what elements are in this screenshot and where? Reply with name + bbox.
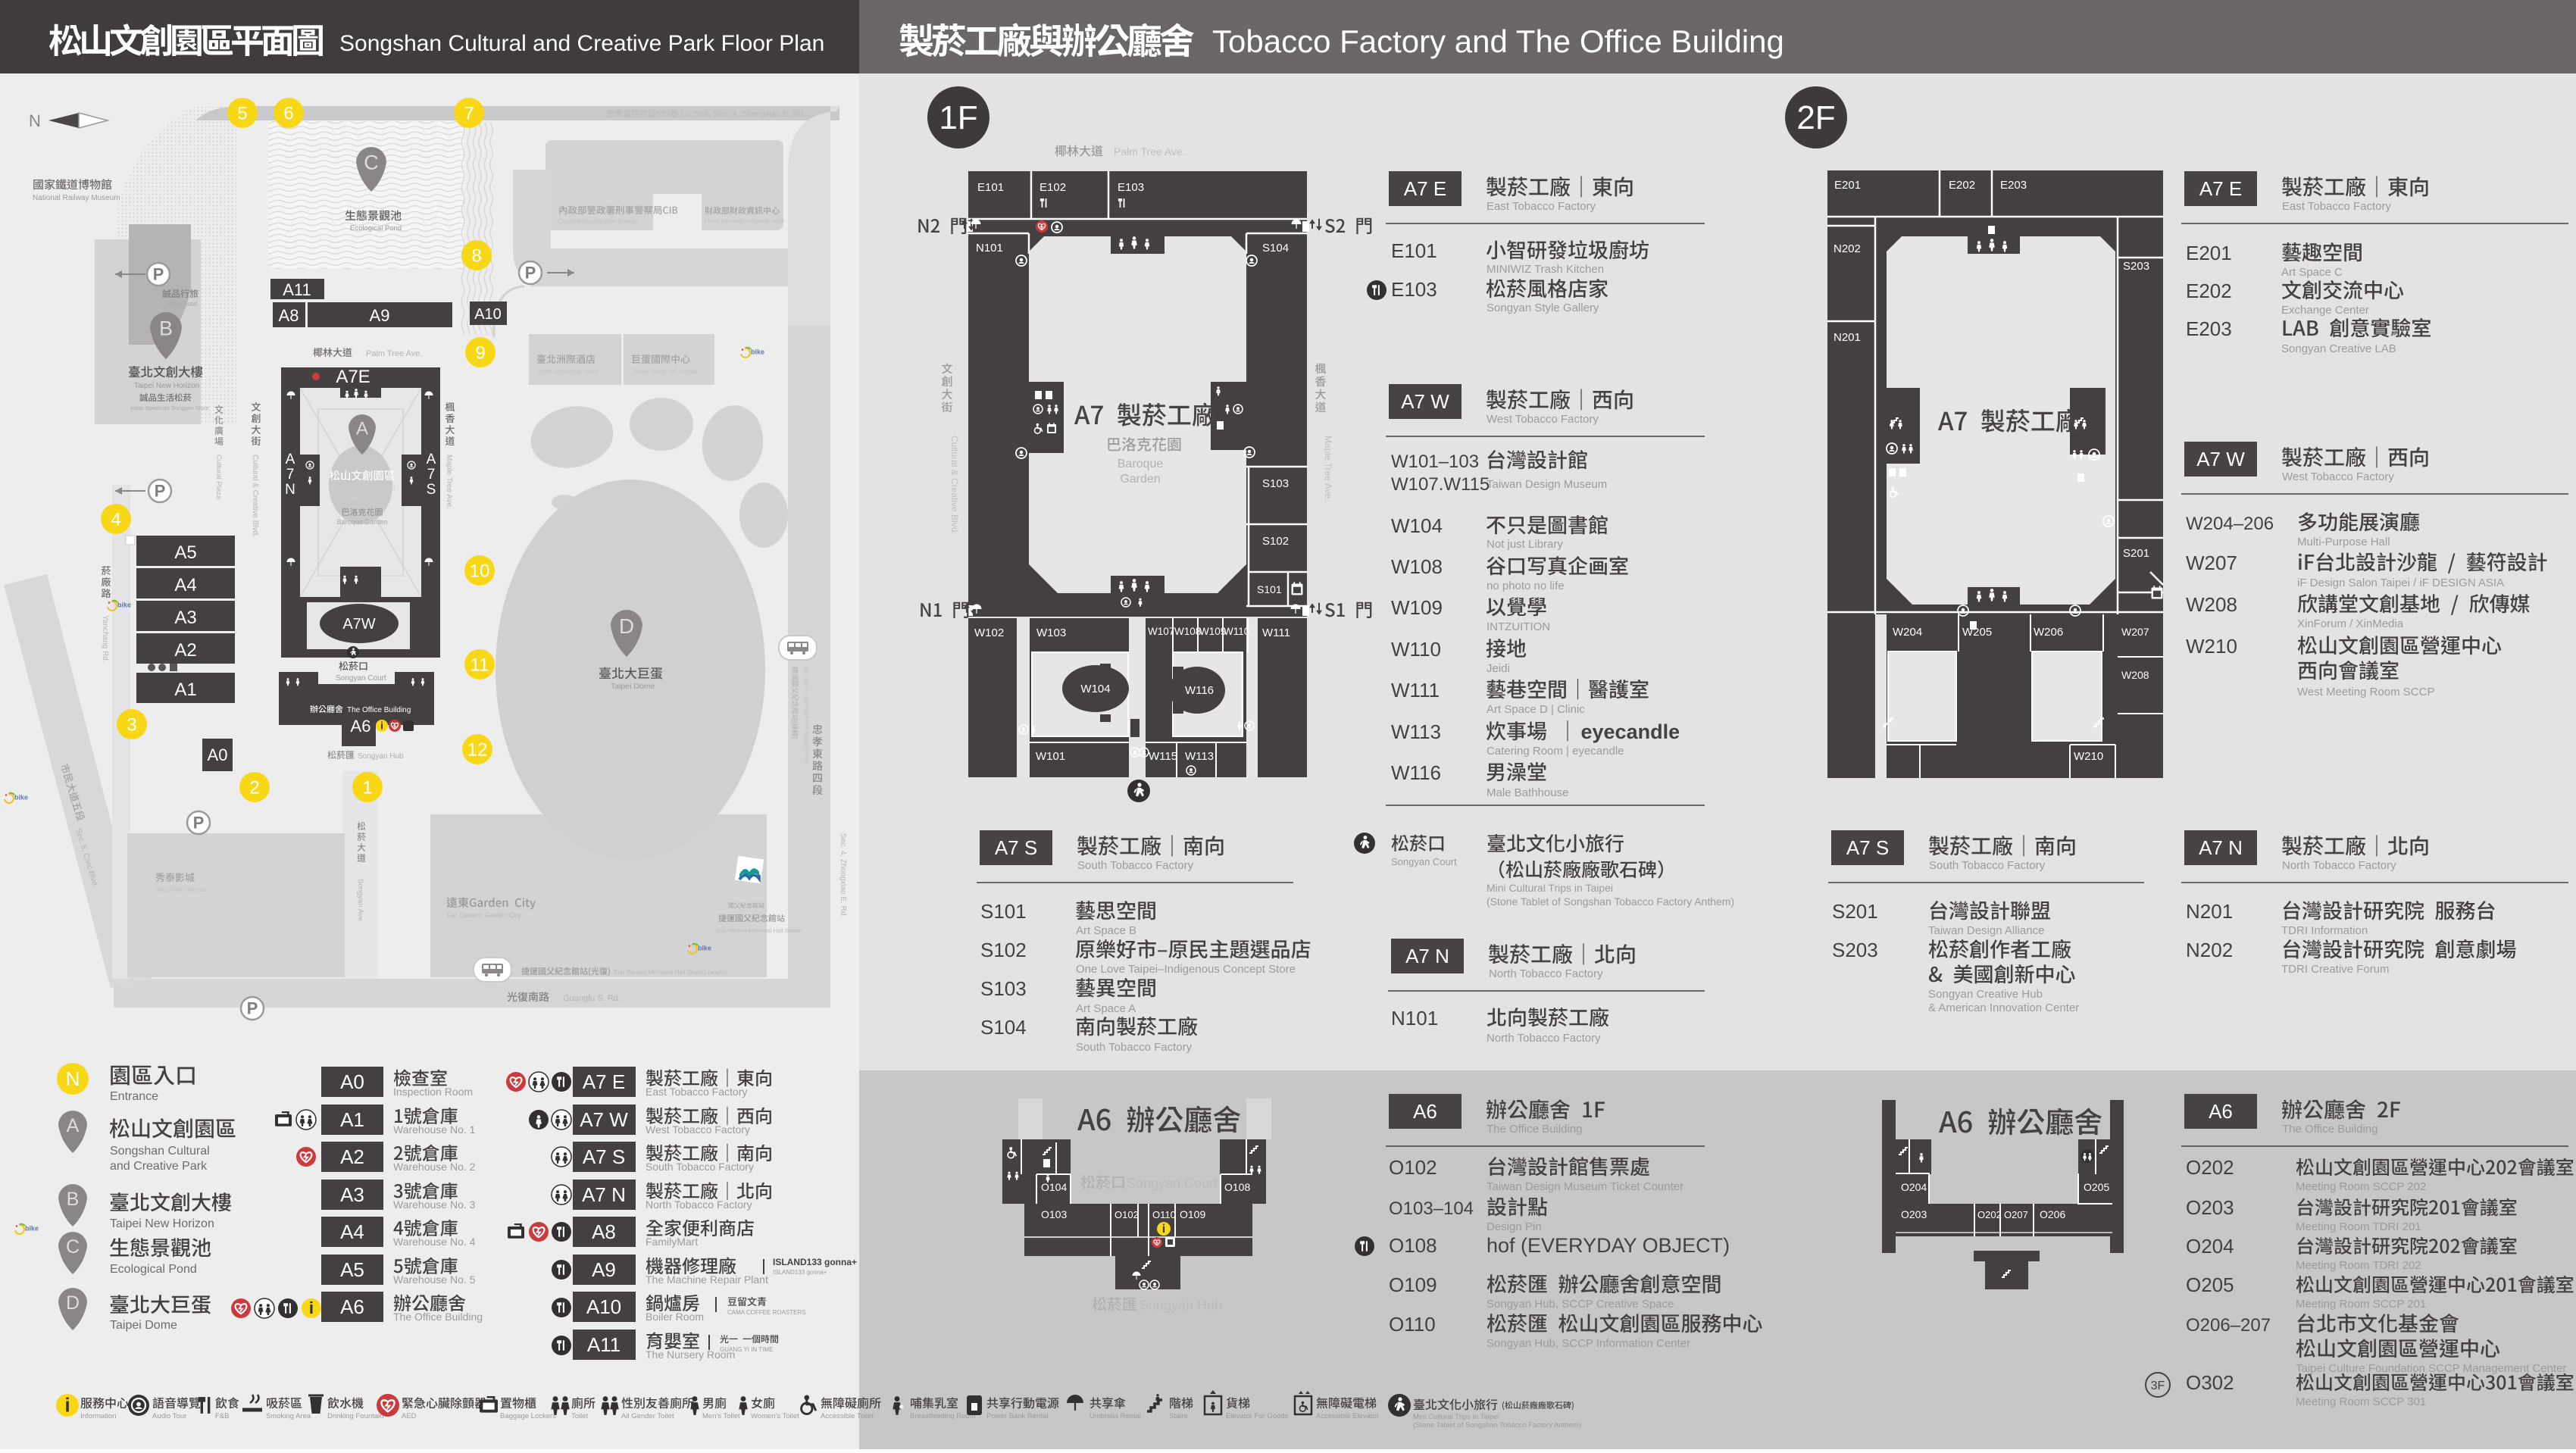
svg-text:W207: W207 — [2186, 552, 2237, 574]
svg-text:Taipei Culture Foundation SCCP: Taipei Culture Foundation SCCP Managemen… — [2296, 1362, 2566, 1375]
svg-text:Toilet: Toilet — [571, 1412, 589, 1420]
svg-text:XinForum / XinMedia: XinForum / XinMedia — [2297, 617, 2404, 630]
svg-text:North Tobacco Factory: North Tobacco Factory — [646, 1198, 752, 1211]
svg-text:W101–103: W101–103 — [1391, 452, 1479, 472]
svg-text:2: 2 — [249, 777, 259, 798]
svg-text:East Tobacco Factory: East Tobacco Factory — [2282, 200, 2391, 213]
svg-text:Breastfeeding Room: Breastfeeding Room — [910, 1412, 976, 1420]
svg-text:Entrance: Entrance — [110, 1090, 158, 1103]
svg-text:Art Space C: Art Space C — [2281, 266, 2343, 279]
svg-text:S104: S104 — [980, 1016, 1027, 1039]
svg-text:A5: A5 — [340, 1258, 364, 1281]
svg-text:Taiwan Design Museum Ticket Co: Taiwan Design Museum Ticket Counter — [1487, 1180, 1683, 1193]
svg-text:InterContinental Taipei: InterContinental Taipei — [538, 368, 599, 375]
svg-text:Exchange Center: Exchange Center — [2281, 304, 2369, 317]
svg-text:W103: W103 — [1036, 627, 1066, 639]
svg-text:O202: O202 — [1977, 1209, 2002, 1220]
svg-text:A6: A6 — [1413, 1100, 1437, 1123]
svg-text:Mini Cultural Trips in Taipei: Mini Cultural Trips in Taipei — [1487, 882, 1613, 894]
svg-text:Catering Room | eyecandle: Catering Room | eyecandle — [1487, 745, 1624, 758]
svg-text:A0: A0 — [208, 745, 228, 764]
svg-text:Sun Yat-sen Memorial Hall Stat: Sun Yat-sen Memorial Hall Station[Green] — [803, 667, 808, 765]
svg-text:A3: A3 — [340, 1183, 364, 1206]
svg-text:Yanchang Rd.: Yanchang Rd. — [101, 615, 109, 663]
svg-text:Baroque Garden: Baroque Garden — [337, 518, 388, 526]
svg-text:W204: W204 — [1893, 626, 1922, 639]
svg-text:O103: O103 — [1041, 1208, 1067, 1220]
svg-text:10: 10 — [470, 561, 490, 581]
svg-text:Accessible Toilet: Accessible Toilet — [821, 1412, 874, 1420]
svg-text:i: i — [64, 1395, 70, 1416]
svg-text:C: C — [364, 152, 379, 174]
svg-text:W204–206: W204–206 — [2186, 514, 2274, 534]
svg-text:AED: AED — [402, 1412, 417, 1420]
svg-text:W115: W115 — [1149, 750, 1177, 763]
svg-text:Art Space B: Art Space B — [1076, 924, 1136, 937]
svg-text:A10: A10 — [474, 306, 502, 323]
svg-text:O108: O108 — [1389, 1234, 1437, 1257]
svg-text:S101: S101 — [980, 900, 1027, 923]
svg-text:A7 W: A7 W — [2196, 448, 2245, 470]
svg-text:A6: A6 — [351, 717, 371, 736]
svg-text:O206–207: O206–207 — [2186, 1315, 2271, 1336]
svg-text:South Tobacco Factory: South Tobacco Factory — [1077, 859, 1194, 872]
svg-text:Baroque: Baroque — [1118, 458, 1164, 470]
svg-text:Songshan Cultural and Creative: Songshan Cultural and Creative Park Floo… — [339, 31, 824, 56]
svg-text:no photo no life: no photo no life — [1487, 580, 1565, 592]
svg-text:Songyan Court: Songyan Court — [336, 674, 386, 683]
svg-text:N202: N202 — [2186, 939, 2233, 961]
svg-text:ISLAND133 gonna+: ISLAND133 gonna+ — [773, 1269, 827, 1276]
svg-text:Songyan Hub, SCCP Information: Songyan Hub, SCCP Information Center — [1487, 1337, 1690, 1350]
svg-text:A11: A11 — [587, 1333, 621, 1356]
svg-text:Cultural & Creative Blvd.: Cultural & Creative Blvd. — [251, 455, 259, 537]
svg-text:North Tobacco Factory: North Tobacco Factory — [2282, 859, 2396, 872]
svg-text:A9: A9 — [370, 306, 390, 325]
svg-text:Stairs: Stairs — [1169, 1412, 1188, 1420]
svg-text:A7W: A7W — [342, 616, 375, 633]
svg-text:忠孝東路四段553巷 Ln. 553, Sec. 4, Zh: 忠孝東路四段553巷 Ln. 553, Sec. 4, Zhongxiao E.… — [606, 108, 806, 119]
svg-text:Art Space A: Art Space A — [1076, 1002, 1136, 1015]
svg-text:Taipei Dome: Taipei Dome — [110, 1319, 177, 1332]
svg-text:O108: O108 — [1224, 1181, 1250, 1193]
svg-text:W109: W109 — [1391, 596, 1443, 619]
svg-text:Songyan Style Gallery: Songyan Style Gallery — [1487, 302, 1599, 314]
svg-text:O206: O206 — [2040, 1208, 2065, 1220]
svg-text:D: D — [66, 1292, 80, 1314]
svg-text:One Love Taipei–Indigenous Con: One Love Taipei–Indigenous Concept Store — [1076, 963, 1296, 976]
svg-text:Songyan Hub: Songyan Hub — [358, 752, 404, 761]
svg-text:O207: O207 — [2004, 1209, 2028, 1220]
svg-text:Warehouse No. 4: Warehouse No. 4 — [393, 1236, 476, 1248]
svg-text:O110: O110 — [1389, 1313, 1436, 1336]
svg-text:Meeting Room TDRI 202: Meeting Room TDRI 202 — [2296, 1259, 2421, 1272]
svg-text:O109: O109 — [1180, 1208, 1205, 1220]
svg-text:(Stone Tablet of Songshan Toba: (Stone Tablet of Songshan Tobacco Factor… — [1413, 1421, 1581, 1430]
svg-text:A: A — [67, 1115, 80, 1136]
svg-text:S203: S203 — [2123, 260, 2149, 273]
svg-text:eslite hotel: eslite hotel — [168, 301, 197, 308]
svg-text:B: B — [159, 317, 173, 340]
svg-text:8: 8 — [471, 245, 481, 266]
svg-text:W116: W116 — [1185, 684, 1214, 697]
svg-text:A11: A11 — [283, 280, 311, 299]
svg-text:11: 11 — [470, 655, 489, 675]
svg-text:Songshan Cultural: Songshan Cultural — [110, 1145, 210, 1158]
svg-text:GUANG YI IN TIME: GUANG YI IN TIME — [720, 1346, 773, 1353]
svg-text:Fiscal Information Agency, MOF: Fiscal Information Agency, MOF — [705, 217, 786, 224]
svg-text:S103: S103 — [1262, 477, 1289, 490]
svg-text:S: S — [427, 482, 436, 498]
svg-text:S102: S102 — [980, 939, 1027, 961]
svg-text:Garden: Garden — [1120, 473, 1160, 486]
svg-text:B: B — [67, 1189, 80, 1210]
svg-text:3F: 3F — [2151, 1380, 2165, 1392]
svg-text:1: 1 — [362, 777, 372, 798]
svg-text:Baggage Lockers: Baggage Lockers — [500, 1412, 556, 1420]
svg-text:Meeting Room TDRI 201: Meeting Room TDRI 201 — [2296, 1220, 2421, 1233]
svg-text:A8: A8 — [279, 306, 299, 325]
svg-text:Maple Tree Ave.: Maple Tree Ave. — [1323, 436, 1333, 502]
svg-text:F&B: F&B — [215, 1412, 229, 1420]
svg-text:Ecological Pond: Ecological Pond — [350, 224, 402, 233]
svg-text:C: C — [66, 1236, 80, 1258]
svg-text:Meeting Room SCCP 301: Meeting Room SCCP 301 — [2296, 1395, 2426, 1408]
svg-text:O102: O102 — [1114, 1209, 1139, 1220]
svg-text:ISLAND133 gonna+: ISLAND133 gonna+ — [773, 1257, 857, 1267]
svg-text:West Tobacco Factory: West Tobacco Factory — [646, 1123, 750, 1136]
svg-text:eslite Spectrum Songyan Store: eslite Spectrum Songyan Store — [130, 405, 208, 411]
svg-text:S104: S104 — [1262, 242, 1289, 255]
svg-text:bike: bike — [698, 945, 711, 952]
svg-text:7: 7 — [427, 467, 436, 483]
svg-text:P: P — [155, 482, 166, 501]
svg-text:iF Design Salon Taipei / iF DE: iF Design Salon Taipei / iF DESIGN ASIA — [2297, 577, 2504, 589]
svg-text:Art Space D | Clinic: Art Space D | Clinic — [1487, 703, 1585, 716]
svg-text:A7 N: A7 N — [582, 1183, 626, 1206]
svg-text:Smoking Area: Smoking Area — [266, 1412, 311, 1420]
svg-text:Audio Tour: Audio Tour — [152, 1412, 186, 1420]
svg-text:National Railway Museum: National Railway Museum — [33, 194, 120, 202]
svg-text:A2: A2 — [340, 1145, 364, 1168]
svg-text:Songyan Court: Songyan Court — [1391, 856, 1457, 867]
svg-text:W208: W208 — [2186, 593, 2237, 616]
svg-text:3: 3 — [127, 714, 136, 735]
svg-text:Taiwan Design Museum: Taiwan Design Museum — [1487, 478, 1607, 491]
svg-text:捷運國父紀念館站[綠線]: 捷運國父紀念館站[綠線] — [791, 667, 799, 739]
svg-text:Elevator For Goods: Elevator For Goods — [1226, 1412, 1289, 1420]
svg-text:E202: E202 — [1949, 179, 1975, 192]
svg-text:N101: N101 — [1391, 1007, 1438, 1030]
svg-text:Cultural Plaza: Cultural Plaza — [214, 455, 223, 500]
svg-text:Inspection Room: Inspection Room — [393, 1086, 473, 1098]
svg-text:Multi-Purpose Hall: Multi-Purpose Hall — [2297, 536, 2390, 548]
svg-text:E203: E203 — [2000, 179, 2027, 192]
svg-text:bike: bike — [751, 348, 764, 356]
svg-text:A: A — [356, 419, 368, 439]
svg-text:W210: W210 — [2074, 750, 2103, 763]
svg-text:W101: W101 — [1036, 750, 1065, 763]
svg-text:Taipei New Horizon: Taipei New Horizon — [134, 382, 199, 390]
svg-text:A1: A1 — [340, 1108, 364, 1131]
svg-text:Taipei New Horizon: Taipei New Horizon — [110, 1217, 214, 1230]
svg-text:& American Innovation Center: & American Innovation Center — [1928, 1001, 2079, 1014]
svg-text:A7 W: A7 W — [580, 1108, 628, 1131]
svg-text:O205: O205 — [2084, 1181, 2109, 1193]
svg-text:South Tobacco Factory: South Tobacco Factory — [646, 1161, 754, 1173]
svg-text:O103–104: O103–104 — [1389, 1198, 1474, 1219]
svg-text:bike: bike — [14, 794, 28, 801]
svg-text:All Gender Toilet: All Gender Toilet — [621, 1412, 674, 1420]
svg-text:Songyan Hub, SCCP Creative Spa: Songyan Hub, SCCP Creative Space — [1487, 1298, 1674, 1311]
svg-text:Songshan Cultural and: Songshan Cultural and — [330, 484, 395, 492]
svg-text:O102: O102 — [1389, 1156, 1437, 1179]
svg-text:bike: bike — [25, 1225, 39, 1233]
svg-text:Palm Tree Ave.: Palm Tree Ave. — [1114, 145, 1186, 158]
svg-text:Songyan Ave.: Songyan Ave. — [356, 879, 364, 923]
svg-text:Taipei Dome Intl. Center: Taipei Dome Intl. Center — [633, 368, 698, 375]
svg-text:Creative Park: Creative Park — [342, 492, 382, 499]
svg-text:A4: A4 — [340, 1220, 364, 1243]
svg-text:7: 7 — [464, 103, 474, 123]
svg-text:W210: W210 — [2186, 635, 2237, 658]
svg-text:A9: A9 — [592, 1258, 616, 1281]
svg-text:O109: O109 — [1389, 1273, 1437, 1296]
svg-text:Umbrella Rental: Umbrella Rental — [1089, 1412, 1141, 1420]
svg-text:W104: W104 — [1391, 514, 1443, 537]
svg-text:P: P — [153, 265, 164, 284]
svg-text:Sun Yat-sen Memorial Hall Stop: Sun Yat-sen Memorial Hall Stop(Guangfu) — [614, 969, 727, 976]
svg-text:A7 S: A7 S — [583, 1145, 625, 1168]
svg-text:W111: W111 — [1391, 679, 1440, 702]
svg-text:i: i — [380, 720, 383, 731]
svg-text:FamilyMart: FamilyMart — [646, 1236, 698, 1248]
svg-text:S201: S201 — [1832, 900, 1878, 923]
svg-text:bike: bike — [117, 602, 131, 609]
svg-text:W111: W111 — [1262, 627, 1290, 639]
svg-text:Criminal Investigation Bureau: Criminal Investigation Bureau — [558, 218, 638, 225]
svg-text:W208: W208 — [2121, 669, 2149, 681]
svg-text:W116: W116 — [1391, 761, 1441, 784]
svg-text:5: 5 — [237, 103, 247, 123]
svg-text:W205: W205 — [1962, 626, 1992, 639]
svg-text:W109: W109 — [1199, 626, 1226, 637]
svg-text:A6: A6 — [340, 1295, 364, 1318]
svg-text:O302: O302 — [2186, 1371, 2234, 1394]
svg-text:(Stone Tablet of Songshan Toba: (Stone Tablet of Songshan Tobacco Factor… — [1487, 895, 1734, 908]
svg-text:Guangfu S. Rd.: Guangfu S. Rd. — [563, 994, 621, 1003]
svg-text:A7 E: A7 E — [2199, 177, 2242, 200]
svg-text:i: i — [1162, 1223, 1165, 1236]
svg-text:Not just Library: Not just Library — [1487, 538, 1563, 551]
svg-text:Women's Toilet: Women's Toilet — [751, 1412, 799, 1420]
svg-text:W207: W207 — [2121, 626, 2149, 638]
svg-text:E101: E101 — [977, 181, 1004, 194]
svg-text:N: N — [285, 482, 295, 498]
svg-text:The Office Building: The Office Building — [347, 706, 411, 714]
svg-text:Taiwan Design Alliance: Taiwan Design Alliance — [1928, 924, 2044, 937]
svg-text:South Tobacco Factory: South Tobacco Factory — [1929, 859, 2046, 872]
svg-text:Songyan Hub: Songyan Hub — [1140, 1298, 1222, 1313]
svg-text:Cultural & Creative Blvd.: Cultural & Creative Blvd. — [949, 436, 960, 535]
svg-text:D: D — [619, 614, 634, 638]
svg-text:The Office Building: The Office Building — [2282, 1123, 2377, 1136]
svg-text:S103: S103 — [980, 977, 1027, 1000]
svg-text:TDRI Creative Forum: TDRI Creative Forum — [2281, 963, 2390, 976]
svg-text:W110: W110 — [1224, 626, 1249, 637]
svg-text:O204: O204 — [1901, 1181, 1927, 1193]
svg-text:O104: O104 — [1041, 1181, 1067, 1193]
svg-text:S201: S201 — [2123, 547, 2149, 560]
svg-text:A: A — [427, 452, 436, 467]
svg-text:East Tobacco Factory: East Tobacco Factory — [646, 1086, 747, 1098]
svg-text:eyecandle: eyecandle — [1581, 720, 1680, 743]
svg-text:Meeting Room SCCP 202: Meeting Room SCCP 202 — [2296, 1180, 2426, 1193]
svg-text:2F: 2F — [1796, 99, 1835, 136]
svg-text:Palm Tree Ave.: Palm Tree Ave. — [366, 349, 422, 358]
svg-text:O203: O203 — [1901, 1208, 1927, 1220]
svg-text:The Office Building: The Office Building — [393, 1311, 483, 1323]
svg-text:A10: A10 — [586, 1295, 621, 1318]
svg-text:Songyan Court: Songyan Court — [1127, 1176, 1218, 1191]
svg-text:12: 12 — [467, 739, 488, 760]
svg-text:Male Bathhouse: Male Bathhouse — [1487, 786, 1568, 799]
svg-text:A7 N: A7 N — [1405, 945, 1449, 967]
svg-text:E202: E202 — [2186, 280, 2232, 302]
svg-text:Warehouse No. 1: Warehouse No. 1 — [393, 1123, 476, 1136]
svg-text:P: P — [525, 264, 536, 283]
svg-text:Maple Tree Ave.: Maple Tree Ave. — [445, 455, 453, 509]
svg-text:A8: A8 — [592, 1220, 616, 1243]
svg-text:W206: W206 — [2034, 626, 2063, 639]
svg-text:and Creative Park: and Creative Park — [110, 1160, 208, 1173]
svg-text:Meeting Room SCCP 201: Meeting Room SCCP 201 — [2296, 1298, 2426, 1311]
svg-text:S203: S203 — [1832, 939, 1878, 961]
svg-text:Songyan Creative Hub: Songyan Creative Hub — [1928, 988, 2043, 1001]
svg-text:Drinking Fountain: Drinking Fountain — [327, 1412, 383, 1420]
svg-text:P: P — [193, 814, 205, 833]
svg-text:A7E: A7E — [336, 367, 370, 387]
svg-text:W102: W102 — [974, 627, 1004, 639]
svg-text:W113: W113 — [1185, 750, 1214, 763]
svg-text:E201: E201 — [2186, 242, 2232, 264]
svg-text:West Tobacco Factory: West Tobacco Factory — [1487, 413, 1599, 426]
svg-text:South Tobacco Factory: South Tobacco Factory — [1076, 1041, 1193, 1054]
svg-text:W108: W108 — [1391, 555, 1443, 578]
svg-text:A7 S: A7 S — [995, 836, 1037, 859]
svg-text:Showtime Cinemas: Showtime Cinemas — [155, 886, 208, 893]
svg-text:A0: A0 — [340, 1070, 364, 1093]
svg-text:W107: W107 — [1148, 626, 1174, 637]
svg-text:E102: E102 — [1039, 181, 1066, 194]
svg-text:W108: W108 — [1174, 626, 1201, 637]
svg-text:A6: A6 — [2209, 1100, 2233, 1123]
svg-text:Accessible Elevator: Accessible Elevator — [1316, 1412, 1379, 1420]
svg-text:Design Pin: Design Pin — [1487, 1220, 1542, 1233]
svg-text:hof (EVERYDAY OBJECT): hof (EVERYDAY OBJECT) — [1487, 1234, 1730, 1257]
svg-text:Warehouse No. 3: Warehouse No. 3 — [393, 1198, 476, 1211]
svg-text:6: 6 — [283, 103, 293, 123]
svg-text:Mini Cultural Trips in Taipei: Mini Cultural Trips in Taipei — [1413, 1413, 1499, 1421]
svg-text:P: P — [247, 999, 258, 1018]
svg-text:Sec. 4, Zhongxiao E. Rd.: Sec. 4, Zhongxiao E. Rd. — [839, 833, 847, 917]
svg-text:CAMA COFFEE ROASTERS: CAMA COFFEE ROASTERS — [727, 1309, 806, 1316]
svg-text:7: 7 — [286, 467, 295, 483]
svg-text:4: 4 — [111, 509, 120, 530]
svg-text:S101: S101 — [1257, 583, 1282, 595]
svg-text:i: i — [309, 1298, 314, 1317]
svg-text:A4: A4 — [174, 575, 196, 595]
svg-text:Warehouse No. 2: Warehouse No. 2 — [393, 1161, 476, 1173]
svg-text:A1: A1 — [174, 680, 196, 700]
svg-text:Songyan Creative LAB: Songyan Creative LAB — [2281, 342, 2396, 355]
svg-text:N202: N202 — [1834, 242, 1861, 255]
svg-text:A7 E: A7 E — [583, 1070, 625, 1093]
svg-text:O204: O204 — [2186, 1235, 2234, 1258]
svg-text:The Office Building: The Office Building — [1487, 1123, 1582, 1136]
svg-text:E203: E203 — [2186, 317, 2232, 340]
svg-text:A5: A5 — [174, 542, 196, 563]
svg-text:N: N — [29, 111, 41, 130]
svg-text:N101: N101 — [976, 242, 1003, 255]
svg-text:Power Bank Rental: Power Bank Rental — [986, 1412, 1048, 1420]
svg-text:Warehouse No. 5: Warehouse No. 5 — [393, 1273, 476, 1286]
svg-text:Taipei Dome: Taipei Dome — [611, 682, 655, 691]
svg-text:A7 S: A7 S — [1846, 836, 1889, 859]
svg-text:W107.W115: W107.W115 — [1391, 474, 1490, 495]
svg-text:Information: Information — [80, 1412, 117, 1420]
svg-text:A7 N: A7 N — [2199, 836, 2243, 859]
svg-text:N: N — [66, 1067, 80, 1090]
svg-text:N201: N201 — [1834, 331, 1861, 344]
svg-text:Jeidi: Jeidi — [1487, 662, 1510, 675]
svg-text:W113: W113 — [1391, 720, 1441, 743]
svg-text:E103: E103 — [1391, 278, 1437, 301]
svg-text:W104: W104 — [1080, 683, 1110, 695]
svg-text:S102: S102 — [1262, 535, 1289, 548]
svg-text:A2: A2 — [174, 640, 196, 661]
svg-text:O110: O110 — [1152, 1209, 1176, 1220]
svg-text:O205: O205 — [2186, 1273, 2234, 1296]
svg-text:E101: E101 — [1391, 239, 1437, 262]
svg-text:Ecological Pond: Ecological Pond — [110, 1263, 197, 1276]
svg-text:A7 W: A7 W — [1401, 390, 1449, 413]
svg-text:E103: E103 — [1118, 181, 1144, 194]
svg-text:West Meeting Room SCCP: West Meeting Room SCCP — [2297, 686, 2434, 698]
svg-text:East Tobacco Factory: East Tobacco Factory — [1487, 200, 1596, 213]
svg-text:N201: N201 — [2186, 900, 2233, 923]
svg-text:E201: E201 — [1834, 179, 1861, 192]
svg-text:O203: O203 — [2186, 1196, 2234, 1219]
svg-text:A: A — [286, 452, 295, 467]
svg-text:Far Eastern Garden City: Far Eastern Garden City — [447, 911, 521, 919]
svg-text:9: 9 — [475, 342, 485, 363]
svg-text:Tobacco Factory and The Office: Tobacco Factory and The Office Building — [1212, 23, 1784, 59]
svg-text:West Tobacco Factory: West Tobacco Factory — [2282, 470, 2394, 483]
svg-text:INTZUITION: INTZUITION — [1487, 620, 1550, 633]
svg-text:Boiler Room: Boiler Room — [646, 1311, 704, 1323]
svg-text:A3: A3 — [174, 608, 196, 628]
svg-text:North Tobacco Factory: North Tobacco Factory — [1489, 967, 1603, 980]
svg-text:W110: W110 — [1391, 638, 1441, 661]
svg-text:The Machine Repair Plant: The Machine Repair Plant — [646, 1273, 768, 1286]
svg-text:Men's Toilet: Men's Toilet — [702, 1412, 740, 1420]
svg-text:North Tobacco Factory: North Tobacco Factory — [1487, 1032, 1601, 1045]
svg-text:1F: 1F — [939, 99, 977, 136]
svg-text:O202: O202 — [2186, 1156, 2234, 1179]
svg-text:Sun Yat-sen Memorial Hall Stat: Sun Yat-sen Memorial Hall Station — [716, 927, 802, 934]
svg-text:TDRI Information: TDRI Information — [2281, 924, 2368, 937]
